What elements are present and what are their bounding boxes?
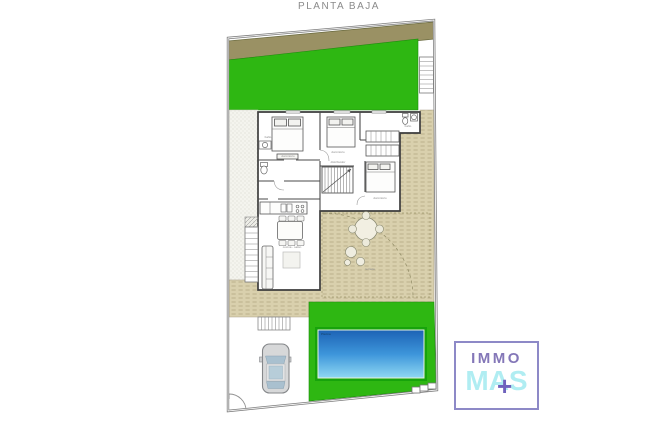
room-label: dormitorio (331, 150, 345, 154)
steps-driveway (258, 317, 290, 330)
room-label: terraza (365, 267, 375, 271)
room-label: cocina - salón (283, 245, 302, 249)
steps-top-right (420, 57, 434, 93)
room-label: dormitorio (373, 196, 387, 200)
sofa (262, 246, 273, 289)
logo-text-immo: IMMO (456, 351, 537, 366)
pool: Piscina (315, 327, 427, 381)
logo-plus-icon: + (497, 373, 512, 399)
bed-right (366, 162, 395, 192)
car (260, 344, 292, 393)
floor-plan-drawing: Piscina (0, 0, 648, 439)
dining-table (278, 216, 305, 246)
stairs-exterior-left (245, 217, 258, 282)
bed-top-middle (327, 117, 355, 147)
rug (283, 252, 300, 268)
kitchen-counter (260, 202, 307, 214)
room-label: distribuidor (331, 160, 346, 164)
room-label: baño (405, 124, 412, 128)
pool-label: Piscina (321, 332, 331, 336)
immo-mas-logo: IMMO MAS + (454, 341, 539, 410)
stairs-interior (322, 167, 353, 193)
room-label: baño (265, 135, 272, 139)
pool-water (318, 330, 424, 378)
room-label: dormitorio (281, 154, 295, 158)
